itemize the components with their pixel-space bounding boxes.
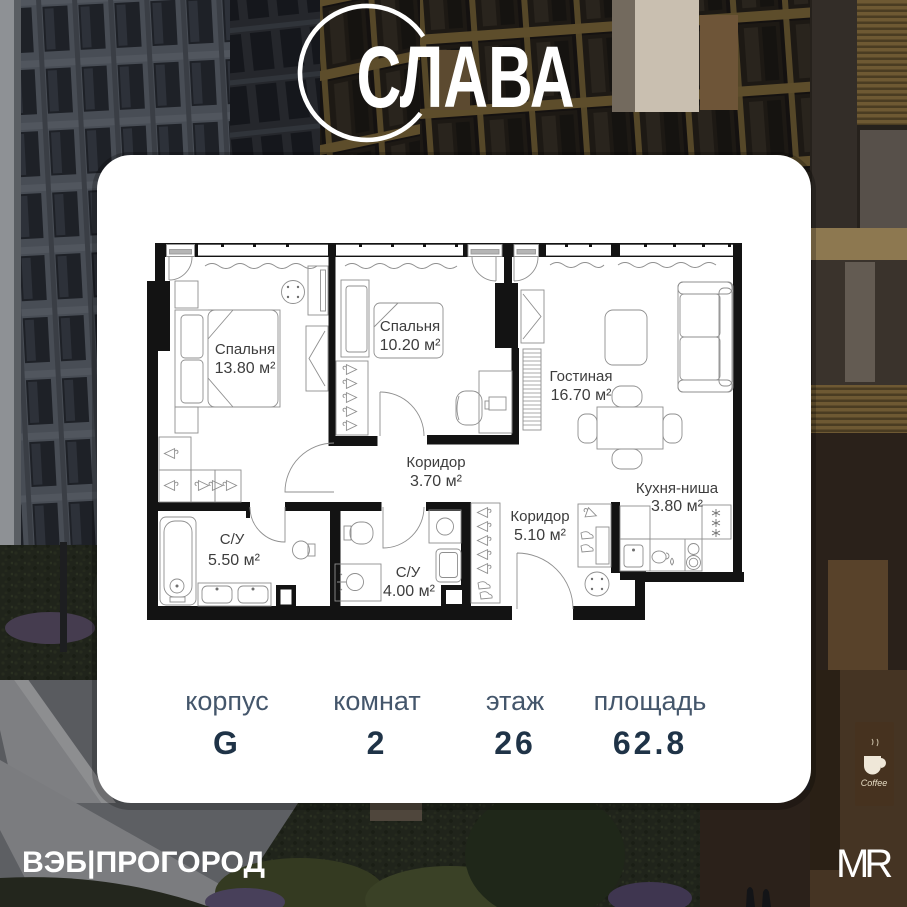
svg-text:MR: MR — [836, 842, 892, 886]
svg-text:G: G — [213, 725, 241, 761]
svg-text:Спальня: Спальня — [380, 318, 440, 335]
svg-text:3.70 м²: 3.70 м² — [410, 473, 463, 490]
svg-text:3.80 м²: 3.80 м² — [651, 498, 704, 515]
svg-text:4.00 м²: 4.00 м² — [383, 583, 436, 600]
svg-text:13.80 м²: 13.80 м² — [215, 360, 276, 377]
svg-text:Спальня: Спальня — [215, 341, 275, 358]
svg-text:Коридор: Коридор — [406, 454, 465, 471]
svg-text:Гостиная: Гостиная — [550, 368, 613, 385]
svg-text:26: 26 — [494, 725, 536, 761]
svg-text:С/У: С/У — [220, 531, 245, 548]
svg-text:этаж: этаж — [486, 686, 544, 716]
svg-text:Кухня-ниша: Кухня-ниша — [636, 480, 719, 497]
svg-text:62.8: 62.8 — [613, 725, 687, 761]
svg-text:16.70 м²: 16.70 м² — [551, 387, 612, 404]
svg-text:Коридор: Коридор — [510, 508, 569, 525]
svg-text:корпус: корпус — [185, 686, 268, 716]
svg-text:комнат: комнат — [333, 686, 420, 716]
svg-text:5.50 м²: 5.50 м² — [208, 552, 261, 569]
svg-text:2: 2 — [367, 725, 388, 761]
svg-text:Coffee: Coffee — [861, 778, 888, 788]
svg-text:С/У: С/У — [396, 564, 421, 581]
svg-text:СЛАВА: СЛАВА — [357, 29, 575, 126]
svg-text:5.10 м²: 5.10 м² — [514, 527, 567, 544]
svg-text:площадь: площадь — [594, 686, 707, 716]
svg-text:10.20 м²: 10.20 м² — [380, 337, 441, 354]
svg-text:ВЭБ|ПРОГОРОД: ВЭБ|ПРОГОРОД — [22, 846, 265, 879]
